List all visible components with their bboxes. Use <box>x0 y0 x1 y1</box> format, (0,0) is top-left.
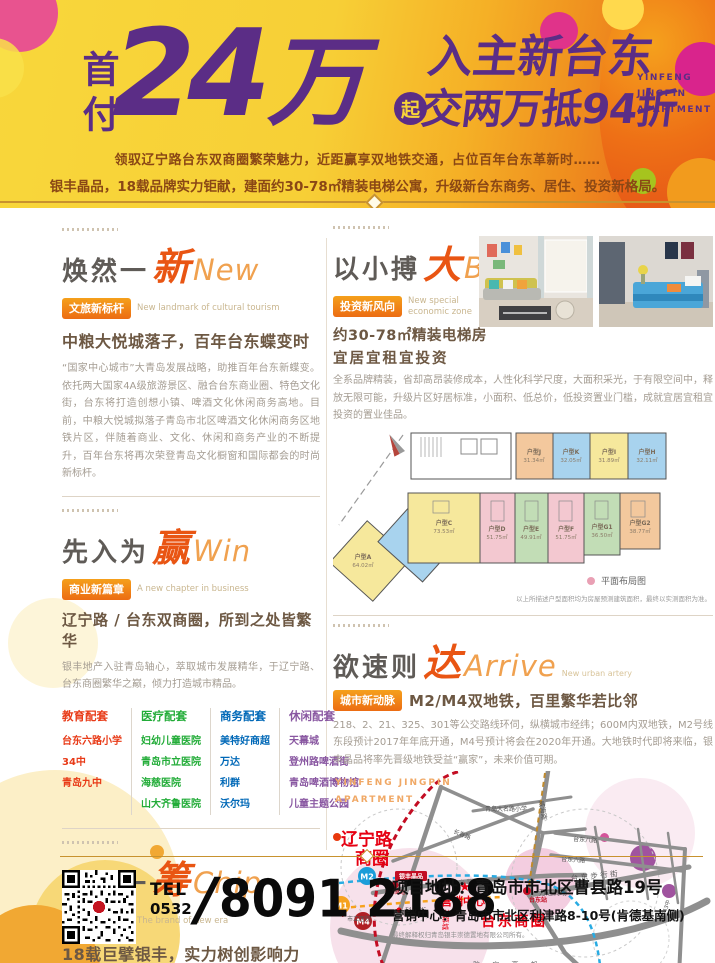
interior-photo-living-room <box>479 236 593 327</box>
section-new: 焕然一 新 New 文旅新标杆 New landmark of cultural… <box>62 228 320 483</box>
svg-text:户型G1: 户型G1 <box>591 523 612 531</box>
down-payment-amount: 24 万 <box>112 12 365 138</box>
dotted-line <box>62 509 118 512</box>
sales-center-address: 营销中心：青岛市市北区利津路8-10号(肯德基南侧) <box>392 905 712 924</box>
svg-text:户型E: 户型E <box>523 525 539 533</box>
badge-english: A new chapter in business <box>137 584 249 595</box>
section-new-body: “国家中心城市”大青岛发展战略，助推百年台东新蝶变。依托两大国家4A级旅游景区、… <box>62 360 320 483</box>
section-divider <box>62 828 320 829</box>
legend-dot <box>587 577 595 585</box>
section-big-subtitle1: 约30-78㎡精装电梯房 <box>333 324 713 345</box>
unit-H <box>628 433 666 479</box>
svg-text:户型I: 户型I <box>602 448 616 456</box>
amount-number: 24 <box>112 12 263 138</box>
section-win-subtitle: 辽宁路 / 台东双商圈，所到之处皆繁华 <box>62 609 320 651</box>
svg-text:台东八路: 台东八路 <box>573 835 598 845</box>
section-arrive-subtitle: M2/M4双地铁，百里繁华若比邻 <box>409 690 638 711</box>
svg-text:户型K: 户型K <box>563 448 580 456</box>
svg-text:73.53㎡: 73.53㎡ <box>433 527 455 535</box>
badge: 文旅新标杆 <box>62 298 131 319</box>
svg-text:32.11㎡: 32.11㎡ <box>636 456 658 464</box>
section-new-subtitle: 中粮大悦城落子，百年台东蝶变时 <box>62 328 320 352</box>
liaoning-circle-label: 辽宁路 <box>341 829 393 850</box>
intro-banner: 领驭辽宁路台东双商圈繁荣魅力，近距赢享双地铁交通，占位百年台东革新时…… 银丰晶… <box>0 149 715 195</box>
amenity-column-business: 商务配套 美特好商超 万达 利群 沃尔玛 <box>220 708 280 815</box>
amenity-item: 利群 <box>220 773 270 794</box>
brand-english: YINFENG JINGPIN APARTMENT <box>637 70 712 119</box>
amenity-item: 沃尔玛 <box>220 794 270 815</box>
interior-photo-bedroom <box>599 236 713 327</box>
floorplan-caption: 以上所描述户型面积均为房屋预测建筑面积，最终以实测面积为准。 <box>516 594 711 603</box>
floor-plan: 户型J 31.34㎡ 户型K 32.05㎡ 户型I 31.89㎡ 户型H 32.… <box>333 429 713 607</box>
unit-I <box>590 433 628 479</box>
amount-unit: 万 <box>267 30 365 138</box>
section-new-title: 焕然一 新 New <box>62 236 320 291</box>
dotted-line <box>62 228 118 231</box>
amenity-item: 海慈医院 <box>141 773 201 794</box>
right-column: 以小搏 大 Big 投资新风向 New special economic zon… <box>333 226 713 963</box>
svg-text:49.91㎡: 49.91㎡ <box>520 533 542 541</box>
section-arrive-body: 218、2、21、325、301等公交路线环伺，纵横城市经纬；600M内双地铁，… <box>333 717 713 770</box>
amenity-item: 万达 <box>220 752 270 773</box>
svg-text:31.34㎡: 31.34㎡ <box>523 456 545 464</box>
section-win: 先入为 赢 Win 商业新篇章 A new chapter in busines… <box>62 509 320 815</box>
amenity-item: 青岛九中 <box>62 773 122 794</box>
project-address: 项目地址：青岛市市北区曹县路19号 <box>392 874 712 898</box>
footer-divider <box>60 856 703 857</box>
svg-text:32.05㎡: 32.05㎡ <box>560 456 582 464</box>
left-column: 焕然一 新 New 文旅新标杆 New landmark of cultural… <box>62 228 320 963</box>
dotted-line <box>62 841 118 844</box>
svg-text:户型D: 户型D <box>489 525 506 533</box>
amenity-column-medical: 医疗配套 妇幼儿童医院 青岛市立医院 海慈医院 山大齐鲁医院 <box>141 708 211 815</box>
badge: 城市新动脉 <box>333 690 402 711</box>
diamond-ornament <box>365 193 383 208</box>
amenity-table: 教育配套 台东六路小学 34中 青岛九中 医疗配套 妇幼儿童医院 青岛市立医院 … <box>62 708 320 815</box>
section-win-body: 银丰地产入驻青岛轴心，萃取城市发展精华，于辽宁路、台东商圈繁华之巅，倾力打造城市… <box>62 659 320 694</box>
badge: 投资新风向 <box>333 296 402 317</box>
section-win-badge-row: 商业新篇章 A new chapter in business <box>62 579 320 600</box>
svg-text:31.89㎡: 31.89㎡ <box>598 456 620 464</box>
svg-text:38.77㎡: 38.77㎡ <box>629 527 651 535</box>
dotted-line <box>333 226 389 229</box>
amenity-item: 美特好商超 <box>220 731 270 752</box>
badge: 商业新篇章 <box>62 579 131 600</box>
amenity-item: 妇幼儿童医院 <box>141 731 201 752</box>
qr-logo-dot <box>93 901 105 913</box>
liaoning-circle-label2: 商圈 <box>355 848 389 869</box>
slash-ornament: / <box>196 873 217 925</box>
svg-text:户型G2: 户型G2 <box>629 519 650 527</box>
svg-text:户型C: 户型C <box>436 519 453 527</box>
section-divider <box>333 615 713 616</box>
intro-line2: 银丰晶品，18载品牌实力钜献，建面约30-78㎡精装电梯公寓，升级新台东商务、居… <box>0 175 715 195</box>
amenity-item: 34中 <box>62 752 122 773</box>
svg-text:户型A: 户型A <box>355 553 372 561</box>
tel-label: TEL <box>150 881 187 900</box>
unit-C <box>408 493 480 563</box>
section-win-title: 先入为 赢 Win <box>62 517 320 572</box>
header-banner: 首付 24 万 起 入主新台东 交两万抵94折 YINFENG JINGPIN … <box>0 0 715 208</box>
header-divider <box>0 201 715 203</box>
fine-print: 最终解释权归青岛银丰崇德置地有限公司所有。 <box>392 929 712 939</box>
section-big-subtitle2: 宜居宜租宜投资 <box>333 347 713 368</box>
phone-labels: TEL 0532 <box>150 881 192 918</box>
section-new-badge-row: 文旅新标杆 New landmark of cultural tourism <box>62 298 320 319</box>
svg-text:户型F: 户型F <box>558 525 574 533</box>
unit-K <box>553 433 590 479</box>
section-arrive-title: 欲速则 达 Arrive New urban artery <box>333 632 713 687</box>
area-code: 0532 <box>150 900 192 918</box>
amenity-item: 台东六路小学 <box>62 731 122 752</box>
map-watermark: YINFENG JINGPIN APARTMENT <box>335 775 452 809</box>
amenity-item: 青岛市立医院 <box>141 752 201 773</box>
section-arrive-badge-row: 城市新动脉 M2/M4双地铁，百里繁华若比邻 <box>333 690 713 711</box>
svg-text:64.02㎡: 64.02㎡ <box>352 561 374 569</box>
section-big-body: 全系品牌精装，省却高昂装修成本，人性化科学尺度，大面积采光，于有限空间中，释放无… <box>333 372 713 425</box>
north-arrow-icon <box>384 431 405 456</box>
svg-text:户型J: 户型J <box>527 448 541 456</box>
flyer-page: 首付 24 万 起 入主新台东 交两万抵94折 YINFENG JINGPIN … <box>0 0 715 963</box>
svg-text:36.50㎡: 36.50㎡ <box>591 531 613 539</box>
section-big: 以小搏 大 Big 投资新风向 New special economic zon… <box>333 226 713 368</box>
svg-text:51.75㎡: 51.75㎡ <box>486 533 508 541</box>
amenity-column-education: 教育配套 台东六路小学 34中 青岛九中 <box>62 708 132 815</box>
svg-text:51.75㎡: 51.75㎡ <box>555 533 577 541</box>
section-divider <box>62 496 320 497</box>
svg-text:青岛大名路小学: 青岛大名路小学 <box>485 805 527 813</box>
amenity-item: 山大齐鲁医院 <box>141 794 201 815</box>
legend-label: 平面布局图 <box>601 575 646 587</box>
interior-photos <box>479 236 713 327</box>
badge-english: New special economic zone <box>408 296 472 317</box>
unit-J <box>516 433 553 479</box>
svg-text:户型H: 户型H <box>638 448 655 456</box>
address-block: 项目地址：青岛市市北区曹县路19号 营销中心：青岛市市北区利津路8-10号(肯德… <box>392 874 712 939</box>
dotted-line <box>333 624 389 627</box>
badge-english: New landmark of cultural tourism <box>137 303 280 314</box>
qr-code <box>62 870 136 944</box>
intro-line1: 领驭辽宁路台东双商圈繁荣魅力，近距赢享双地铁交通，占位百年台东革新时…… <box>0 149 715 168</box>
